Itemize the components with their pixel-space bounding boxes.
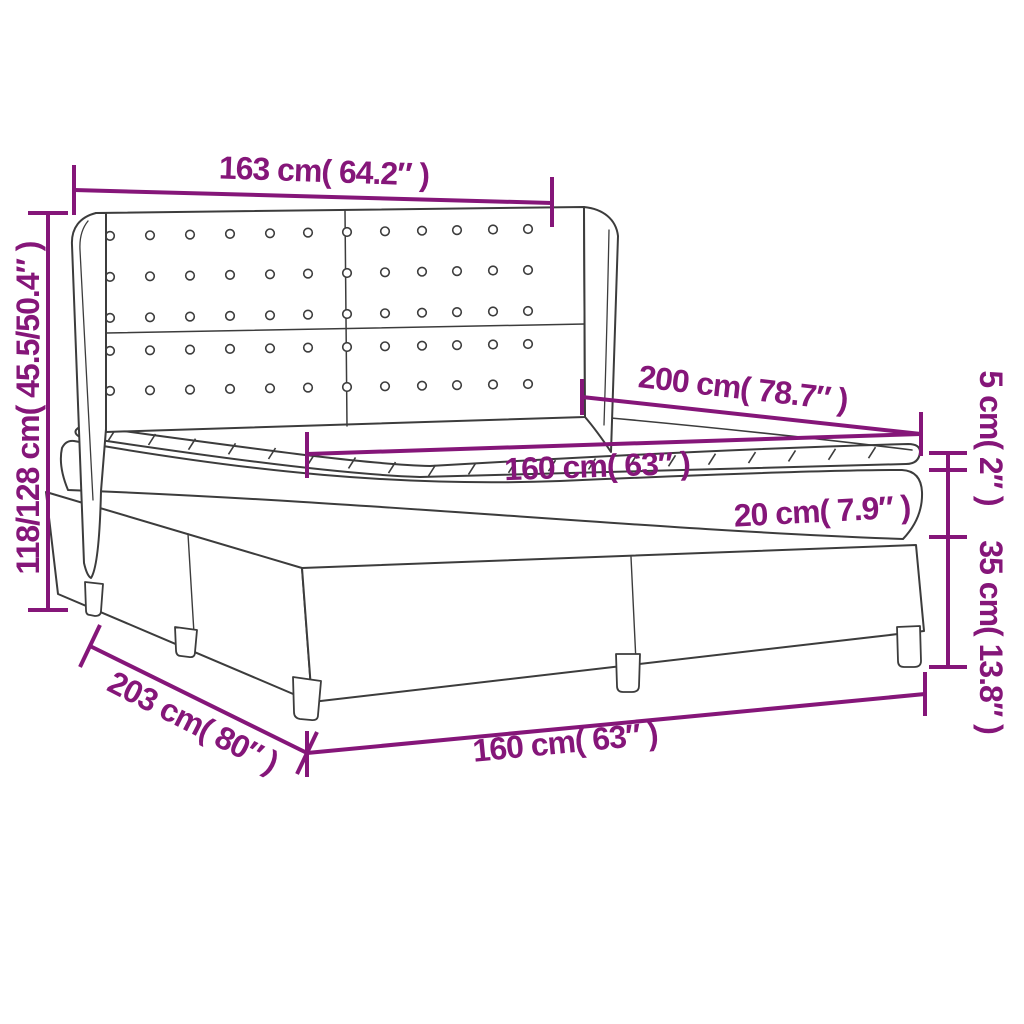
headboard-button <box>266 344 275 353</box>
headboard-button <box>381 342 390 351</box>
headboard-button <box>186 230 195 239</box>
headboard-button <box>418 341 427 350</box>
headboard-button <box>226 312 235 321</box>
headboard-button <box>146 231 155 240</box>
headboard-button <box>266 384 275 393</box>
dim-label-headboard-width: 163 cm( 64.2″ ) <box>218 151 429 190</box>
headboard-button <box>381 309 390 318</box>
headboard-button <box>453 226 462 235</box>
bed-leg <box>897 626 921 667</box>
headboard-button <box>146 346 155 355</box>
headboard-button <box>453 381 462 390</box>
headboard-button <box>453 341 462 350</box>
headboard-button <box>418 308 427 317</box>
bed-leg <box>616 654 640 692</box>
headboard-button <box>381 227 390 236</box>
headboard-button <box>146 313 155 322</box>
headboard-button <box>343 228 352 237</box>
headboard-button <box>453 267 462 276</box>
headboard-button <box>186 385 195 394</box>
headboard-button <box>304 310 313 319</box>
mattress-top-rear-edge <box>600 417 912 450</box>
headboard-button <box>226 271 235 280</box>
headboard-button <box>226 345 235 354</box>
headboard-button <box>489 380 498 389</box>
headboard-button <box>146 272 155 281</box>
headboard-button <box>524 340 533 349</box>
dim-label-topper-thickness: 5 cm( 2″ ) <box>975 370 1007 505</box>
headboard-button <box>266 311 275 320</box>
dimension-line <box>74 190 552 203</box>
bed-leg <box>85 582 103 616</box>
headboard-button <box>266 270 275 279</box>
headboard-button <box>304 383 313 392</box>
headboard-button <box>304 343 313 352</box>
headboard <box>72 207 618 578</box>
headboard-button <box>453 308 462 317</box>
headboard-button <box>418 381 427 390</box>
bed-leg <box>175 627 197 657</box>
headboard-button <box>418 226 427 235</box>
dim-label-mattress-width: 160 cm( 63″ ) <box>504 447 691 485</box>
base-front-panel <box>302 545 924 702</box>
headboard-button <box>381 268 390 277</box>
headboard-button <box>343 310 352 319</box>
headboard-button <box>186 271 195 280</box>
headboard-button <box>186 312 195 321</box>
dim-label-base-height: 35 cm( 13.8″ ) <box>975 540 1007 733</box>
headboard-button <box>489 225 498 234</box>
headboard-button <box>381 382 390 391</box>
headboard-button <box>524 266 533 275</box>
bed-leg <box>293 677 321 720</box>
headboard-button <box>226 385 235 394</box>
headboard-button <box>524 380 533 389</box>
dim-label-overall-height: 118/128 cm( 45.5/50.4″ ) <box>12 242 44 575</box>
headboard-button <box>524 225 533 234</box>
headboard-button <box>304 269 313 278</box>
headboard-button <box>343 383 352 392</box>
headboard-button <box>343 269 352 278</box>
headboard-button <box>226 230 235 239</box>
headboard-button <box>146 386 155 395</box>
headboard-button <box>266 229 275 238</box>
headboard-button <box>489 340 498 349</box>
headboard-button <box>186 345 195 354</box>
headboard-button <box>418 267 427 276</box>
headboard-button <box>489 266 498 275</box>
tick <box>80 625 100 667</box>
headboard-button <box>343 343 352 352</box>
headboard-button <box>524 307 533 316</box>
dim-label-mattress-thickness: 20 cm( 7.9″ ) <box>733 490 911 531</box>
headboard-right-wing <box>584 207 618 452</box>
headboard-button <box>489 307 498 316</box>
headboard-panel <box>96 207 585 432</box>
diagram-canvas: 163 cm( 64.2″ ) 118/128 cm( 45.5/50.4″ )… <box>0 0 1024 1024</box>
dim-height-stack <box>929 453 967 667</box>
headboard-button <box>304 228 313 237</box>
